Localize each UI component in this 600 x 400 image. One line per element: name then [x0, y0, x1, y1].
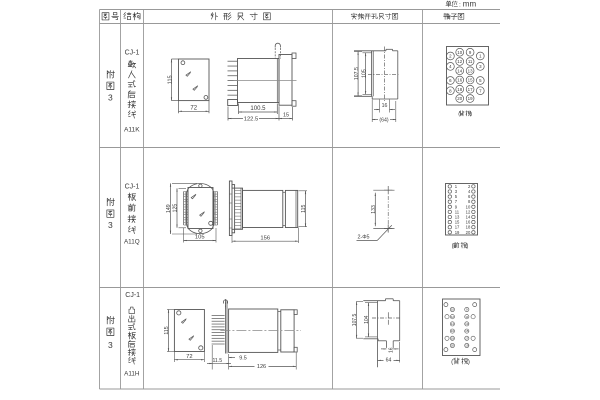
svg-text:11.5: 11.5 [212, 358, 222, 364]
svg-text:): ) [470, 112, 472, 118]
svg-text:133: 133 [371, 205, 377, 214]
svg-text:11: 11 [468, 59, 473, 64]
svg-text:19: 19 [468, 96, 473, 101]
svg-text:64: 64 [386, 358, 392, 364]
svg-text:156: 156 [260, 235, 270, 241]
svg-text:CJ-1: CJ-1 [125, 50, 140, 57]
svg-text:16: 16 [457, 78, 462, 83]
svg-text:15: 15 [468, 78, 473, 83]
svg-text:11: 11 [465, 315, 468, 319]
svg-text:16: 16 [388, 347, 394, 353]
svg-text:(: ( [452, 243, 454, 249]
svg-text:10: 10 [451, 308, 455, 312]
svg-text:72: 72 [190, 106, 197, 112]
svg-text:(64): (64) [379, 118, 388, 124]
svg-text:10: 10 [457, 50, 462, 55]
svg-text:15: 15 [465, 329, 469, 333]
svg-text:12: 12 [451, 315, 455, 319]
svg-text:): ) [466, 243, 468, 249]
svg-text:100.5: 100.5 [250, 106, 266, 112]
svg-text:20: 20 [457, 96, 462, 101]
svg-text:107.5: 107.5 [352, 313, 358, 326]
svg-text:72: 72 [186, 354, 192, 360]
svg-text:17: 17 [468, 87, 473, 92]
svg-text:115: 115 [301, 205, 307, 213]
svg-text:115: 115 [164, 326, 170, 334]
svg-text:19: 19 [455, 230, 460, 235]
svg-text:105: 105 [195, 235, 205, 241]
svg-text:9.5: 9.5 [239, 356, 247, 362]
svg-text:12: 12 [457, 59, 462, 64]
svg-text::: : [459, 1, 461, 8]
svg-text:20: 20 [466, 230, 471, 235]
svg-text:115: 115 [167, 75, 173, 84]
svg-text:14: 14 [457, 68, 462, 73]
svg-text:3: 3 [108, 340, 113, 350]
svg-text:18: 18 [451, 336, 455, 340]
svg-text:122.5: 122.5 [244, 116, 259, 122]
svg-text:mm: mm [463, 0, 477, 8]
svg-text:126: 126 [257, 364, 266, 370]
svg-text:3: 3 [108, 93, 113, 103]
svg-text:15: 15 [283, 113, 289, 119]
svg-text:125: 125 [173, 204, 179, 213]
svg-text:): ) [468, 358, 470, 365]
svg-text:A11K: A11K [124, 127, 140, 134]
svg-text:13: 13 [465, 322, 469, 326]
svg-text:16: 16 [382, 103, 388, 109]
svg-text:16: 16 [451, 329, 455, 333]
svg-text:17: 17 [465, 336, 469, 340]
svg-text:13: 13 [468, 68, 473, 73]
svg-text:18: 18 [457, 87, 462, 92]
svg-text:14: 14 [451, 322, 455, 326]
svg-text:A11Q: A11Q [124, 239, 140, 246]
svg-text:3: 3 [108, 220, 113, 230]
svg-text:104: 104 [364, 315, 370, 324]
svg-text:19: 19 [465, 344, 469, 348]
svg-text:2-Φ5: 2-Φ5 [357, 235, 369, 241]
svg-text:CJ-1: CJ-1 [125, 292, 140, 299]
svg-text:20: 20 [451, 344, 455, 348]
svg-text:A11H: A11H [124, 371, 140, 378]
svg-text:105: 105 [361, 69, 367, 78]
svg-text:107.5: 107.5 [354, 67, 360, 80]
svg-text:CJ-1: CJ-1 [125, 184, 140, 191]
